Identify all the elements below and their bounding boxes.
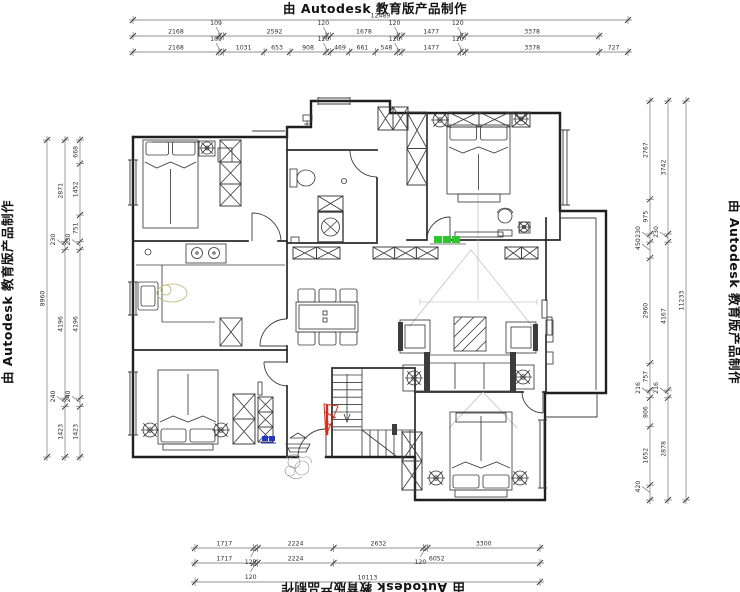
bed-master [447, 125, 510, 194]
bed-base [163, 444, 213, 450]
tv-wall-cabinet [293, 247, 340, 259]
svg-text:120: 120 [389, 36, 401, 43]
svg-text:230: 230 [50, 234, 57, 246]
svg-text:727: 727 [608, 45, 620, 52]
dim-chain: 2168109103165390812046966154812014771203… [129, 36, 632, 56]
svg-text:4196: 4196 [73, 316, 80, 332]
svg-text:420: 420 [635, 481, 642, 493]
svg-text:240: 240 [65, 390, 72, 402]
balcony-fixture [546, 352, 553, 364]
svg-text:3378: 3378 [524, 29, 540, 36]
svg-text:11233: 11233 [679, 291, 686, 311]
svg-text:216: 216 [635, 382, 642, 394]
ceiling-fan-icon [431, 113, 449, 127]
wall-stub [392, 424, 397, 435]
dim-chain: 287123041962401423 [50, 136, 69, 461]
door-bedroom2 [264, 362, 288, 386]
floorplan-drawing: 由 Autodesk 教育版产品制作 由 Autodesk 教育版产品制作 由 … [0, 0, 740, 592]
svg-text:120: 120 [317, 36, 329, 43]
svg-text:8960: 8960 [40, 291, 47, 307]
svg-text:661: 661 [357, 45, 369, 52]
svg-text:120: 120 [245, 574, 257, 581]
svg-text:3378: 3378 [524, 45, 540, 52]
svg-text:120: 120 [317, 20, 329, 27]
svg-text:1652: 1652 [643, 448, 650, 464]
svg-text:2871: 2871 [58, 183, 65, 199]
svg-text:1423: 1423 [73, 424, 80, 440]
laundry-cabinet [318, 196, 343, 211]
staircase [332, 368, 415, 457]
svg-text:120: 120 [452, 36, 464, 43]
svg-text:1031: 1031 [236, 45, 252, 52]
door-bedroom1 [252, 213, 281, 241]
watermark-right: 由 Autodesk 教育版产品制作 [727, 200, 740, 384]
svg-text:2767: 2767 [643, 142, 650, 158]
svg-text:2878: 2878 [661, 441, 668, 457]
door-kitchen [260, 319, 287, 346]
svg-text:1717: 1717 [216, 556, 232, 563]
svg-text:2168: 2168 [168, 29, 184, 36]
svg-text:109: 109 [210, 20, 222, 27]
svg-text:1423: 1423 [58, 424, 65, 440]
door-bathroom [350, 150, 377, 177]
svg-text:4196: 4196 [58, 316, 65, 332]
svg-text:240: 240 [50, 390, 57, 402]
dim-chain: 21681092592120167812014771203378 [129, 20, 603, 40]
svg-text:1477: 1477 [423, 45, 439, 52]
bathroom-fixtures [290, 115, 347, 243]
svg-text:109: 109 [210, 36, 222, 43]
svg-text:4167: 4167 [661, 308, 668, 324]
wardrobe-bedroom3 [402, 432, 422, 490]
svg-text:12489: 12489 [371, 13, 391, 20]
walls [133, 101, 606, 500]
dim-chain: 668145275123041962401423 [65, 136, 84, 461]
dim-chain: 12489 [129, 13, 632, 25]
svg-text:2224: 2224 [288, 541, 304, 548]
watermark-left: 由 Autodesk 教育版产品制作 [0, 200, 15, 384]
svg-text:6052: 6052 [429, 556, 445, 563]
kitchen-counter [136, 244, 285, 346]
bed-base [455, 490, 507, 497]
svg-text:975: 975 [643, 211, 650, 223]
svg-text:1452: 1452 [73, 181, 80, 197]
ceiling-fan-icon [427, 471, 445, 485]
svg-text:120: 120 [389, 20, 401, 27]
sofa [426, 355, 514, 391]
svg-text:751: 751 [73, 222, 80, 234]
bed-bedroom2 [158, 370, 218, 444]
svg-text:1678: 1678 [356, 29, 372, 36]
wardrobe-bedroom1 [220, 140, 241, 206]
svg-text:2224: 2224 [288, 556, 304, 563]
dim-chain: 374223041672162878 [653, 97, 672, 504]
rug [454, 317, 486, 351]
svg-text:10113: 10113 [358, 575, 378, 582]
svg-text:1477: 1477 [423, 29, 439, 36]
wardrobe-bedroom2 [258, 397, 273, 442]
shoe-cabinet [378, 107, 408, 130]
balcony-slider-panel [542, 300, 547, 318]
svg-text:450: 450 [635, 238, 642, 250]
plant-sketch [285, 455, 312, 479]
bed-bedroom3 [450, 412, 512, 490]
ceiling-fan-icon [141, 423, 159, 437]
ceiling-fan-icon [199, 142, 215, 154]
desk-chair [498, 209, 512, 223]
svg-text:120: 120 [414, 559, 426, 566]
svg-text:2592: 2592 [267, 29, 283, 36]
floorplan-canvas: 由 Autodesk 教育版产品制作 由 Autodesk 教育版产品制作 由 … [0, 0, 740, 592]
dining-set [296, 289, 358, 345]
ceiling-fan-icon [514, 370, 532, 384]
ceiling-fan-icon [405, 371, 423, 385]
dimension-lines: 1248921681092592120167812014771203378216… [40, 13, 691, 587]
svg-text:2960: 2960 [643, 303, 650, 319]
svg-text:230: 230 [635, 226, 642, 238]
entry-porch [285, 433, 312, 479]
svg-text:668: 668 [73, 146, 80, 158]
annotations [261, 236, 466, 443]
dim-chain: 8960 [40, 136, 52, 461]
svg-text:1717: 1717 [216, 541, 232, 548]
shower-head [291, 237, 299, 243]
dim-chain: 276797523045029607572168061652420 [635, 97, 654, 504]
bed-bench [458, 194, 500, 202]
svg-text:3300: 3300 [476, 541, 492, 548]
tv-wall-cabinet [373, 247, 438, 259]
svg-text:230: 230 [653, 226, 660, 238]
svg-text:216: 216 [653, 382, 660, 394]
svg-text:2632: 2632 [371, 541, 387, 548]
dim-chain: 1717120222426321203300 [191, 541, 544, 567]
doors [252, 150, 552, 457]
svg-text:469: 469 [334, 45, 346, 52]
svg-text:230: 230 [65, 234, 72, 246]
red-annotation [324, 404, 338, 436]
wardrobe-bedroom2 [233, 394, 255, 444]
svg-text:806: 806 [643, 406, 650, 418]
toilet [290, 169, 297, 187]
svg-text:548: 548 [380, 45, 392, 52]
bed-bedroom1 [143, 140, 198, 228]
floor-drain [342, 179, 347, 184]
svg-text:653: 653 [271, 45, 283, 52]
svg-text:2168: 2168 [168, 45, 184, 52]
door-entry [298, 429, 326, 457]
svg-text:908: 908 [302, 45, 314, 52]
hall-wardrobe-column [407, 112, 427, 185]
door-bedroom3 [522, 392, 543, 413]
svg-text:3742: 3742 [661, 160, 668, 176]
desk [455, 208, 530, 237]
tv-wall-cabinet [505, 247, 538, 259]
ceiling-fan-icon [511, 471, 529, 485]
svg-text:757: 757 [643, 371, 650, 383]
ceiling-guides [409, 194, 537, 428]
dim-chain: 11233 [679, 97, 691, 504]
svg-text:120: 120 [452, 20, 464, 27]
